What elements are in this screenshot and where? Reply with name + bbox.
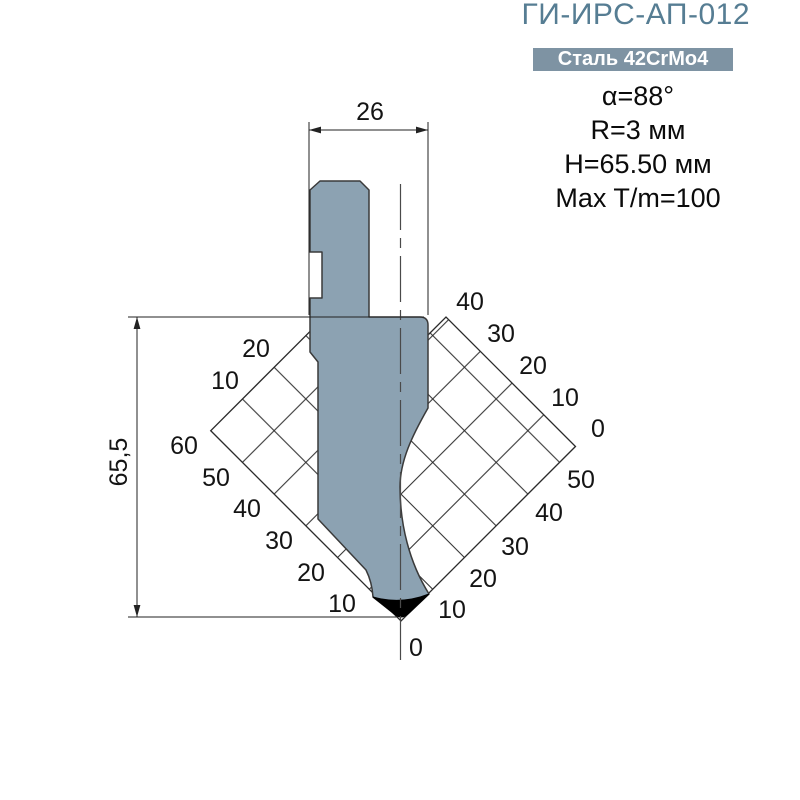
page: ГИ-ИРС-АП-012 Сталь 42CrMo4 α=88° R=3 мм…	[0, 0, 800, 800]
grid-label: 20	[469, 565, 497, 593]
arrow-left-icon	[309, 127, 321, 134]
grid-label: 60	[170, 432, 198, 460]
grid-label: 10	[551, 384, 579, 412]
grid-origin-label: 0	[409, 634, 423, 662]
grid-label: 40	[456, 288, 484, 316]
grid-label: 10	[438, 596, 466, 624]
grid-label: 10	[328, 590, 356, 618]
arrow-down-icon	[134, 605, 141, 617]
grid-label: 0	[591, 415, 605, 443]
grid-label: 40	[535, 499, 563, 527]
grid-label: 30	[487, 320, 515, 348]
grid-label: 30	[501, 533, 529, 561]
grid-label: 40	[233, 495, 261, 523]
arrow-right-icon	[416, 127, 428, 134]
grid-label: 10	[211, 367, 239, 395]
technical-drawing: 26 65,5 10 20 30 40 50 60 10 20 10	[0, 0, 800, 800]
grid-label: 20	[519, 352, 547, 380]
height-value: 65,5	[105, 438, 133, 487]
grid-label: 50	[202, 464, 230, 492]
grid-label: 30	[265, 527, 293, 555]
grid-label: 50	[567, 466, 595, 494]
grid-label: 20	[297, 559, 325, 587]
arrow-up-icon	[134, 317, 141, 329]
width-value: 26	[356, 98, 384, 126]
grid-label: 20	[242, 335, 270, 363]
